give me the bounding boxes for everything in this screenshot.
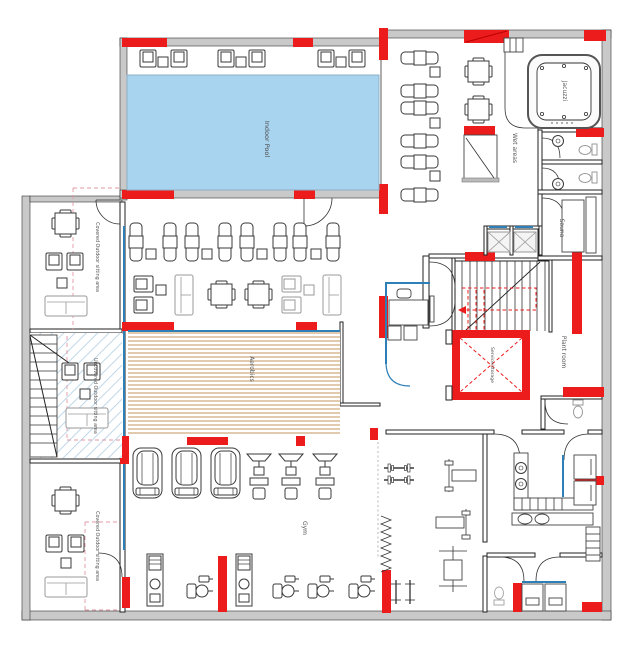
lounge-seating [129,223,341,315]
shower-cubicle [545,584,566,611]
aerobics-room: Aerobics [128,330,340,436]
shower-cubicle [522,584,543,611]
dumbbell-rack [381,516,391,572]
bench-press [445,459,476,492]
access-ramp [462,135,499,182]
gym-room: Gym [133,448,476,606]
lift-lobby [484,226,542,255]
aerobics-wood-floor [128,330,340,436]
treadmill [211,448,240,498]
wc-icon [579,172,597,183]
weight-bench [436,509,470,539]
pool-water [127,75,379,190]
uncovered-outdoor-label: Uncovered Outdoor sitting area [92,358,98,434]
wc-icon [494,587,504,605]
wc-icon [573,400,583,418]
treadmill [133,448,162,498]
lift-2 [514,232,536,252]
outdoor-areas: Covered Outdoor sitting area Uncovered O… [30,188,122,610]
aerobics-label: Aerobics [248,356,255,382]
weight-machine [308,576,334,598]
incline-bench [439,546,467,592]
covered-outdoor-upper-label: Covered Outdoor sitting area [94,222,100,292]
service-shaft-label: Service/storage [489,347,495,383]
indoor-pool-room: Indoor Pool [127,75,379,226]
appliance [574,455,596,479]
changing-area [494,557,566,611]
service-shaft: Service/storage [446,330,526,400]
kitchenette [494,434,600,561]
floor-plan-canvas: Indoor Pool Jacuzzi Wet areas [0,0,629,653]
sauna-room: Sauna [542,197,596,253]
guest-chair [388,326,401,340]
covered-outdoor-lower-label: Covered Outdoor sitting area [94,511,100,581]
exercise-bike [247,454,271,499]
wc-icon [579,144,597,155]
shelving [586,527,600,561]
weight-machine [236,554,252,606]
jacuzzi-label: Jacuzzi [561,80,568,102]
weight-machine [147,554,163,606]
lift-1 [488,232,510,252]
barbell-rack [384,476,414,484]
weight-machine [349,576,375,598]
sauna-label: Sauna [558,219,565,238]
office-chair [397,289,411,298]
weight-machine [187,576,213,598]
barbell-rack [384,464,414,472]
wet-areas-label: Wet areas [511,133,518,163]
exercise-bike [313,454,337,499]
indoor-pool-label: Indoor Pool [263,121,271,157]
treadmill [172,448,201,498]
main-stairs [429,261,545,331]
plant-room: Plant room [545,336,583,424]
reception-desk [389,300,428,325]
floor-plan-drawing: Indoor Pool Jacuzzi Wet areas [0,0,629,653]
weight-machine [273,576,299,598]
entry-steps [504,38,523,52]
exercise-bike [279,454,303,499]
plant-room-label: Plant room [560,336,567,369]
jacuzzi-area: Jacuzzi Wet areas [504,38,600,163]
small-weight-rack [391,580,415,604]
appliance [574,481,596,505]
gym-label: Gym [301,521,308,535]
guest-chair [404,326,417,340]
